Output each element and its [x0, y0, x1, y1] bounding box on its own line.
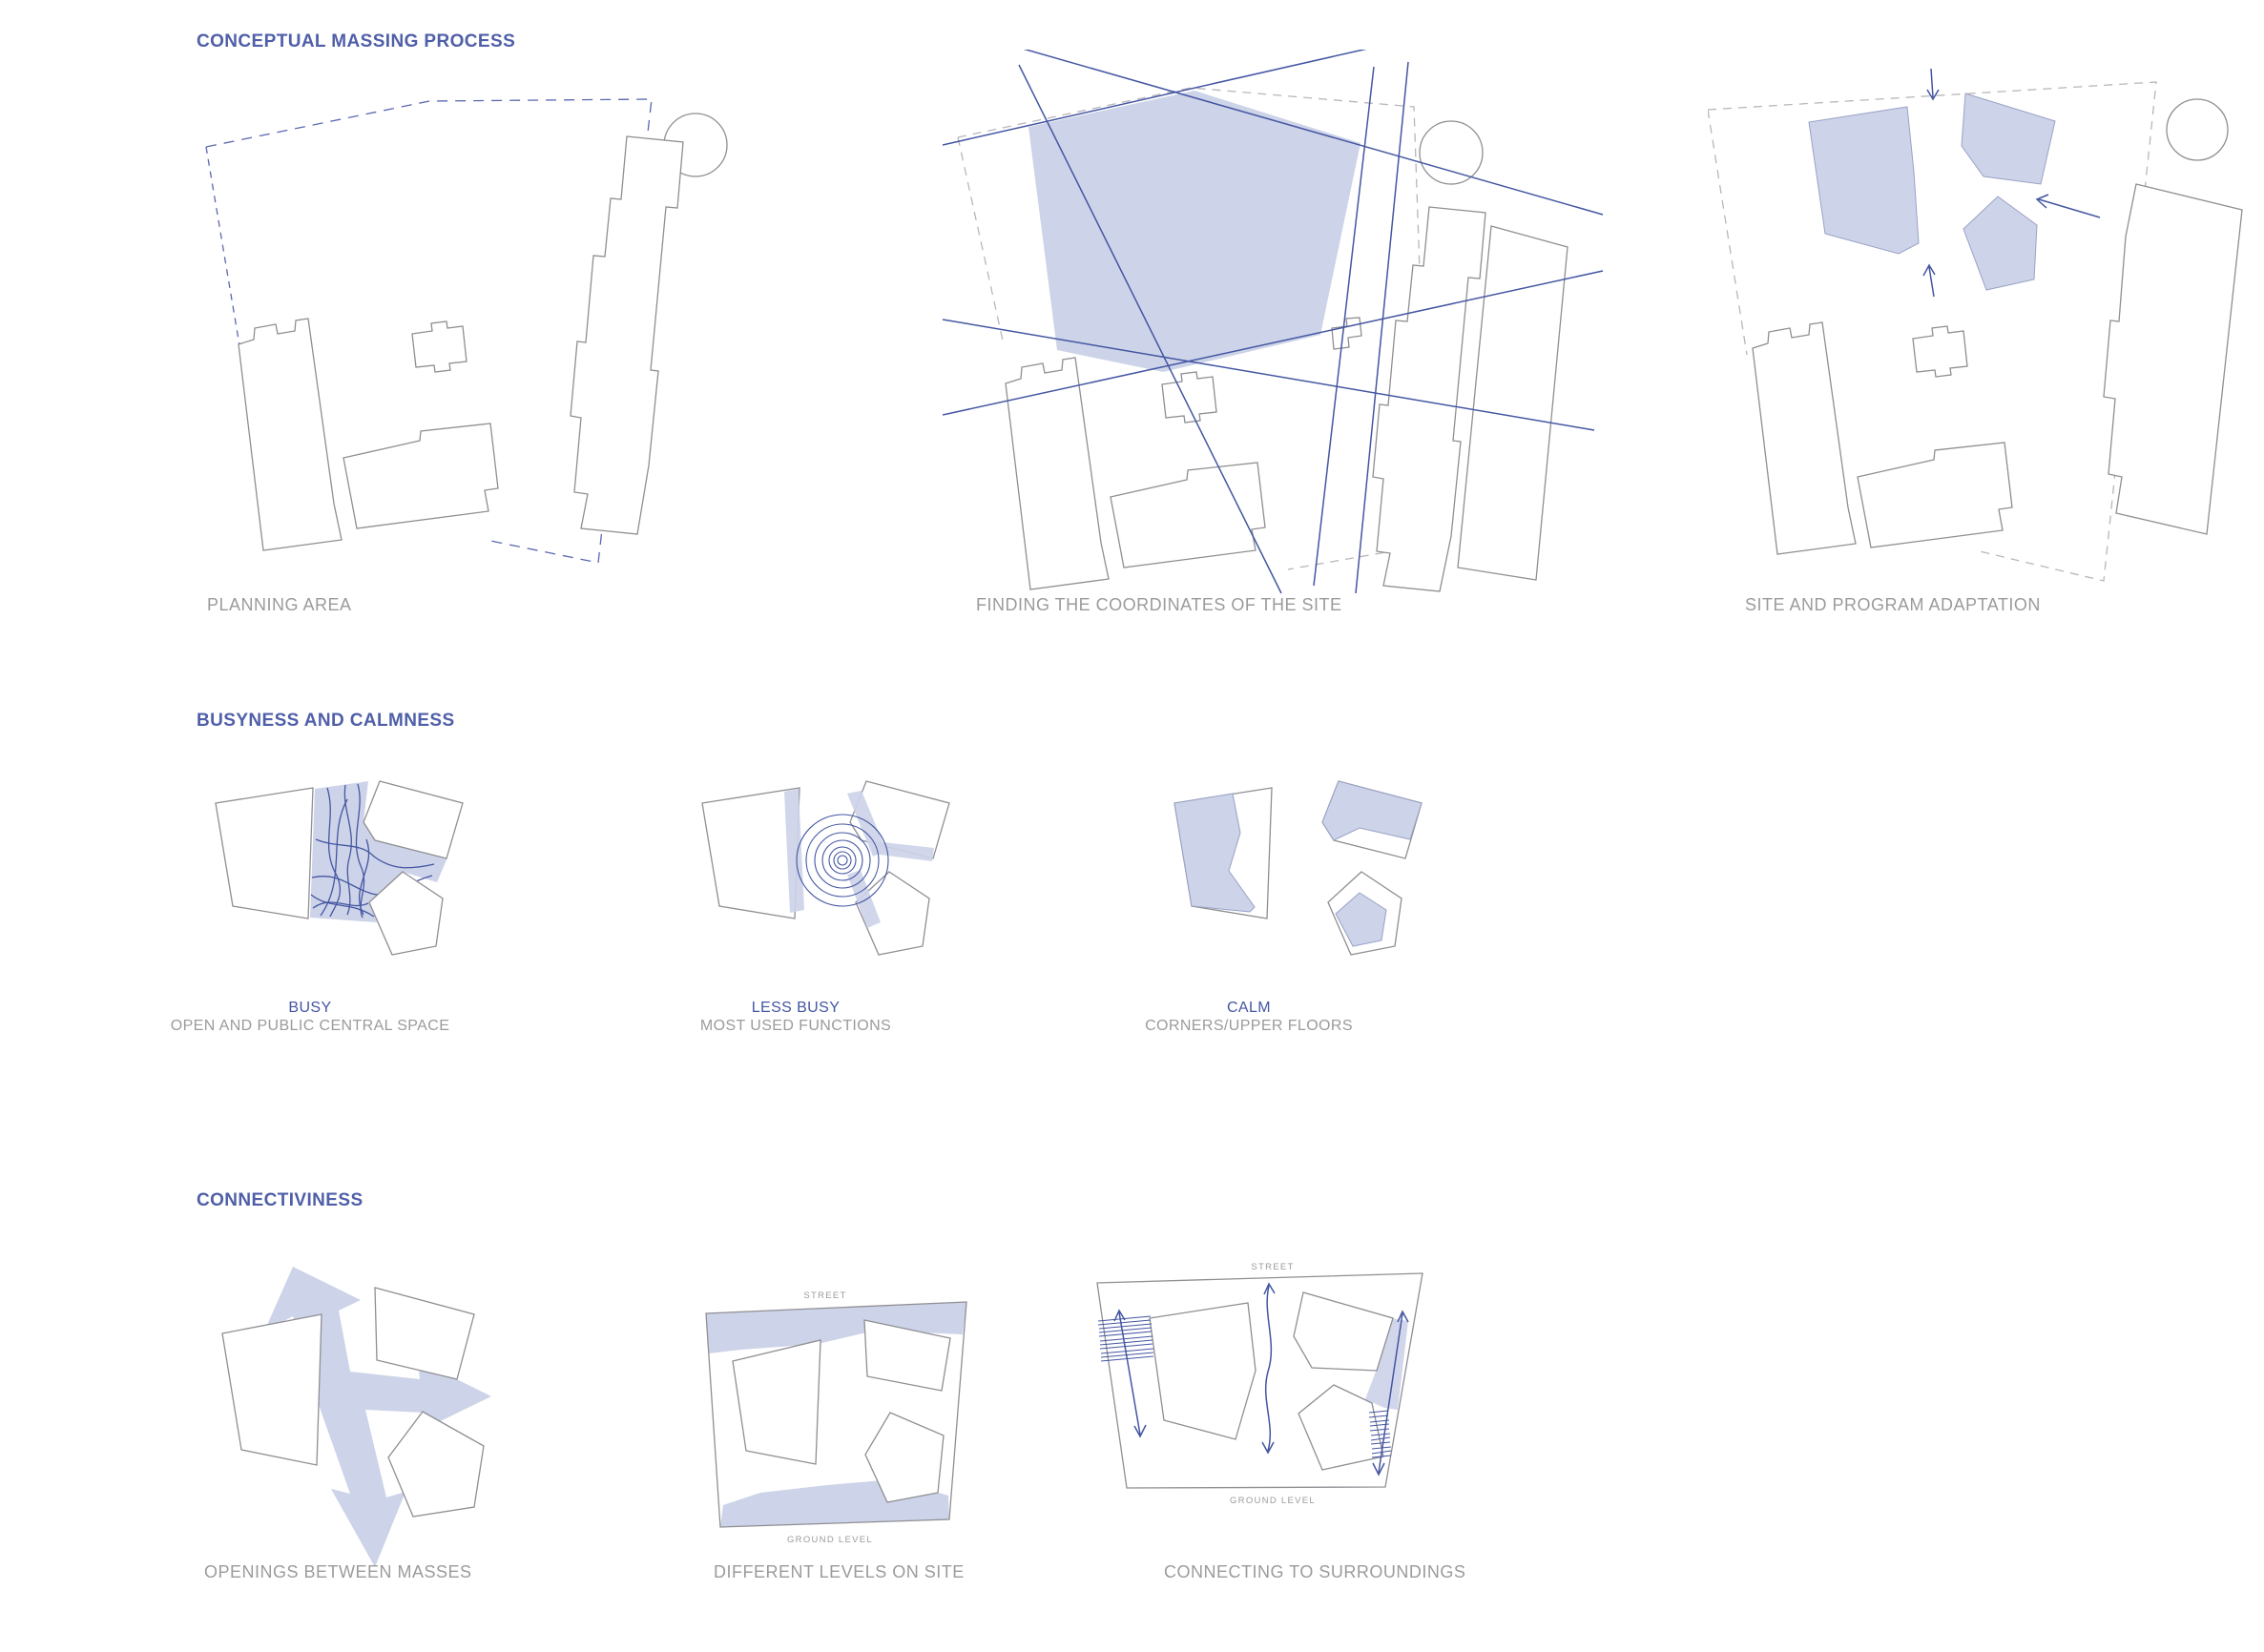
busy-caption-block: BUSY OPEN AND PUBLIC CENTRAL SPACE — [167, 999, 453, 1035]
less-busy-diagram — [692, 780, 978, 966]
label-busy: BUSY — [167, 999, 453, 1017]
caption-busy: OPEN AND PUBLIC CENTRAL SPACE — [167, 1017, 453, 1035]
caption-openings: OPENINGS BETWEEN MASSES — [204, 1562, 472, 1582]
program-masses — [1809, 93, 2055, 290]
caption-levels: DIFFERENT LEVELS ON SITE — [714, 1562, 965, 1582]
busy-diagram — [205, 780, 491, 966]
label-less-busy: LESS BUSY — [653, 999, 939, 1017]
caption-connecting: CONNECTING TO SURROUNDINGS — [1164, 1562, 1465, 1582]
label-calm: CALM — [1106, 999, 1392, 1017]
site-circle — [2167, 99, 2228, 160]
section-title-busyness: BUSYNESS AND CALMNESS — [197, 711, 455, 732]
calm-caption-block: CALM CORNERS/UPPER FLOORS — [1106, 999, 1392, 1035]
openings-diagram — [205, 1257, 520, 1586]
caption-less-busy: MOST USED FUNCTIONS — [653, 1017, 939, 1035]
caption-calm: CORNERS/UPPER FLOORS — [1106, 1017, 1392, 1035]
ground-level-label: GROUND LEVEL — [787, 1535, 873, 1545]
site-circle — [1420, 121, 1483, 184]
connecting-diagram: STREET GROUND LEVEL — [1095, 1257, 1486, 1553]
caption-coordinates: FINDING THE COORDINATES OF THE SITE — [976, 595, 1342, 615]
ground-level-label: GROUND LEVEL — [1230, 1496, 1316, 1506]
section-title-massing: CONCEPTUAL MASSING PROCESS — [197, 31, 515, 52]
concentric-circles — [797, 815, 888, 906]
calm-diagram — [1164, 780, 1450, 966]
site-area-fill — [1028, 91, 1360, 372]
levels-diagram: STREET GROUND LEVEL — [703, 1281, 980, 1562]
planning-area-diagram — [200, 84, 754, 604]
caption-adaptation: SITE AND PROGRAM ADAPTATION — [1745, 595, 2041, 615]
coordinates-diagram — [943, 50, 1606, 608]
section-title-connectiviness: CONNECTIVINESS — [197, 1190, 363, 1211]
calm-zones — [1174, 781, 1422, 946]
adaptation-diagram — [1708, 65, 2264, 589]
existing-building-outlines — [239, 136, 683, 550]
less-busy-caption-block: LESS BUSY MOST USED FUNCTIONS — [653, 999, 939, 1035]
caption-planning-area: PLANNING AREA — [207, 595, 352, 615]
building-masses — [702, 781, 949, 955]
street-label: STREET — [803, 1291, 846, 1301]
building-masses — [1150, 1292, 1393, 1470]
massing-process-sheet: CONCEPTUAL MASSING PROCESS PLANNING AREA — [0, 0, 2264, 1652]
street-label: STREET — [1251, 1262, 1294, 1272]
